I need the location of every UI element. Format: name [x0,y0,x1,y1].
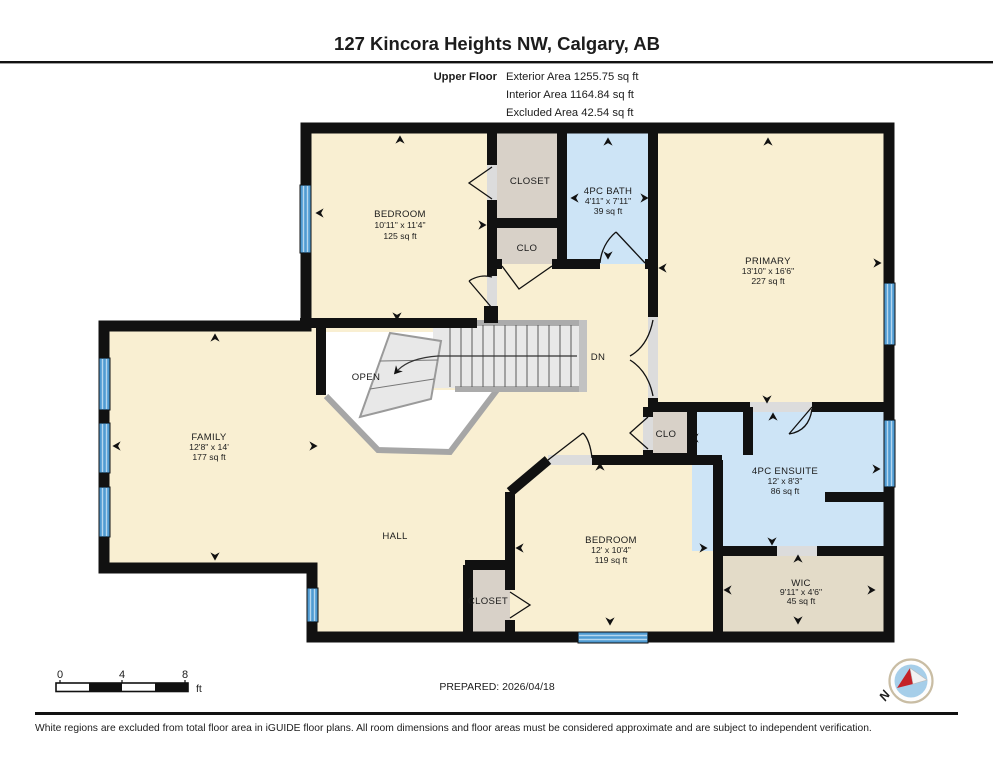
window [307,588,318,622]
stairs-dn-label: DN [591,352,605,363]
room-bath-dims: 4'11" x 7'11" [585,196,631,206]
scale-tick-0: 0 [57,669,63,681]
area-summary-interior: Interior Area 1164.84 sq ft [506,89,635,101]
room-clo-ensuite-name: CLO [656,429,677,440]
disclaimer-text: White regions are excluded from total fl… [35,723,872,734]
room-bedroom-bottom-dims: 12' x 10'4" [591,545,631,555]
window [99,487,110,537]
window [99,358,110,410]
room-closet-top-name: CLOSET [510,176,550,187]
opening-closet-top [487,165,497,200]
room-bedroom-top-name: BEDROOM [374,209,426,220]
window [884,420,895,487]
room-closet-bottom-name: CLOSET [468,596,508,607]
page-title: 127 Kincora Heights NW, Calgary, AB [334,33,660,54]
hall-label: HALL [382,531,408,542]
room-family-dims: 12'8" x 14' [189,442,229,452]
floor-label: Upper Floor [434,71,498,83]
room-ensuite-area: 86 sq ft [771,486,800,496]
room-wic-area: 45 sq ft [787,596,816,606]
scale-unit: ft [196,683,202,695]
stair-rail-end [579,320,587,392]
window [884,283,895,345]
open-label: OPEN [352,372,380,383]
room-primary-dims: 13'10" x 16'6" [742,266,794,276]
room-clo-top-name: CLO [517,243,538,254]
stair-rail-bottom [455,386,587,392]
area-summary-exterior: Exterior Area 1255.75 sq ft [506,71,639,83]
opening-primary [648,317,658,398]
room-bedroom-top-dims: 10'11" x 11'4" [374,220,425,230]
window [99,423,110,473]
wall-stub [484,306,498,323]
area-summary-excluded: Excluded Area 42.54 sq ft [506,107,634,119]
room-bedroom-top-area: 125 sq ft [383,231,417,241]
window [578,632,648,643]
opening-primary-ensuite [750,402,812,412]
room-bedroom-bottom-area: 119 sq ft [595,555,628,565]
opening-wic [777,546,817,556]
room-bath-area: 39 sq ft [594,206,623,216]
scale-bar: 0 4 8 ft [56,669,202,695]
scale-tick-8: 8 [182,669,188,681]
room-primary-area: 227 sq ft [751,276,785,286]
floor-plan-page: 127 Kincora Heights NW, Calgary, AB Uppe… [0,0,993,768]
room-ensuite-dims: 12' x 8'3" [768,476,803,486]
opening-bedroom-bottom [548,455,592,465]
footer-divider [35,712,958,715]
window [300,185,311,253]
scale-tick-4: 4 [119,669,125,681]
room-family-area: 177 sq ft [192,452,226,462]
floor-plan-svg: 127 Kincora Heights NW, Calgary, AB Uppe… [0,0,993,768]
compass-icon: N [876,660,932,704]
header-divider [0,61,993,63]
prepared-date: PREPARED: 2026/04/18 [439,681,555,693]
